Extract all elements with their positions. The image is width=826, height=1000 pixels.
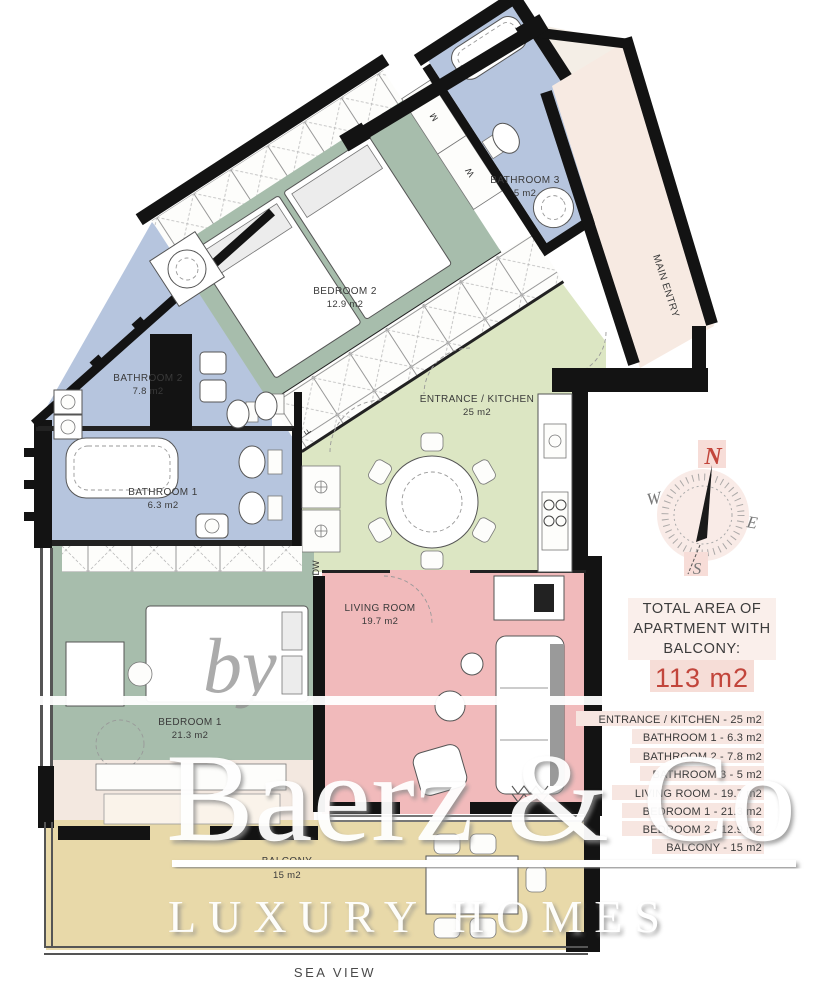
summary-title-1: TOTAL AREA OF — [643, 601, 762, 617]
compass-north: N — [703, 444, 723, 470]
wall-tooth — [24, 512, 34, 521]
bedroom1-label: BEDROOM 1 — [158, 717, 222, 728]
bathroom1-bottom-wall — [52, 540, 304, 546]
kitchen-left-wall — [294, 392, 302, 454]
tv — [534, 584, 554, 612]
balcony-left-rail — [44, 822, 46, 948]
compass: N W E S — [645, 440, 760, 578]
chair — [421, 433, 443, 451]
dining-table — [386, 456, 478, 548]
bathroom1-area: 6.3 m2 — [148, 500, 179, 511]
balcony-area: 15 m2 — [273, 870, 301, 881]
balcony-railing — [44, 946, 588, 948]
left-corner-wall — [38, 766, 54, 828]
coffee-table — [435, 691, 465, 721]
total-area-value: 113 m2 — [655, 663, 749, 693]
chair — [421, 551, 443, 569]
kitchen-label: ENTRANCE / KITCHEN — [420, 394, 534, 405]
watermark-tagline: LUXURY HOMES — [168, 891, 672, 942]
summary-title-2: APARTMENT WITH — [633, 621, 770, 637]
summary-title-3: BALCONY: — [663, 641, 740, 657]
chair — [526, 866, 546, 892]
entry-bottom-wall — [552, 368, 708, 392]
summary-panel: TOTAL AREA OF APARTMENT WITH BALCONY: 11… — [628, 598, 776, 693]
living-area: 19.7 m2 — [362, 616, 398, 627]
pillow — [282, 612, 302, 650]
bedroom1-window — [40, 548, 43, 798]
kitchen-area: 25 m2 — [463, 407, 491, 418]
kitchen-living-wall — [322, 570, 390, 573]
pillow — [282, 656, 302, 694]
bedroom1-balcony-wall — [58, 826, 150, 840]
watermark-brand: Baerz & Co — [166, 729, 796, 868]
kitchen-right-wall — [572, 390, 588, 572]
bedroom2-area: 12.9 m2 — [327, 299, 363, 310]
balcony-left-rail — [51, 822, 53, 948]
watermark-by: by — [203, 622, 277, 709]
compass-south: S — [693, 559, 702, 578]
entry-side-wall — [692, 326, 706, 392]
watermark-underline — [172, 860, 796, 867]
floorplan-page: M W F — [0, 0, 826, 1000]
bathroom3-area: 5 m2 — [514, 188, 536, 199]
wall-tooth — [24, 448, 34, 457]
desk-chair — [128, 662, 152, 686]
bathroom1-label: BATHROOM 1 — [128, 487, 197, 498]
bathroom2-area: 7.8 m2 — [133, 386, 164, 397]
dishwasher-label: DW — [311, 560, 321, 575]
balcony-railing — [44, 953, 588, 955]
bedroom1-window — [50, 548, 53, 798]
wall-tooth — [24, 480, 34, 489]
watermark-bar — [38, 696, 812, 705]
bedroom2-label: BEDROOM 2 — [313, 286, 377, 297]
sea-view-label: SEA VIEW — [294, 965, 376, 980]
living-label: LIVING ROOM — [344, 603, 415, 614]
bathroom3-label: BATHROOM 3 — [490, 175, 559, 186]
legend-item: ENTRANCE / KITCHEN - 25 m2 — [598, 714, 762, 726]
floor-plan-svg: M W F — [0, 0, 826, 1000]
bedroom1-closet — [62, 546, 302, 572]
side-table — [461, 653, 483, 675]
bathroom2-label: BATHROOM 2 — [113, 373, 182, 384]
left-exterior-wall — [34, 420, 52, 548]
